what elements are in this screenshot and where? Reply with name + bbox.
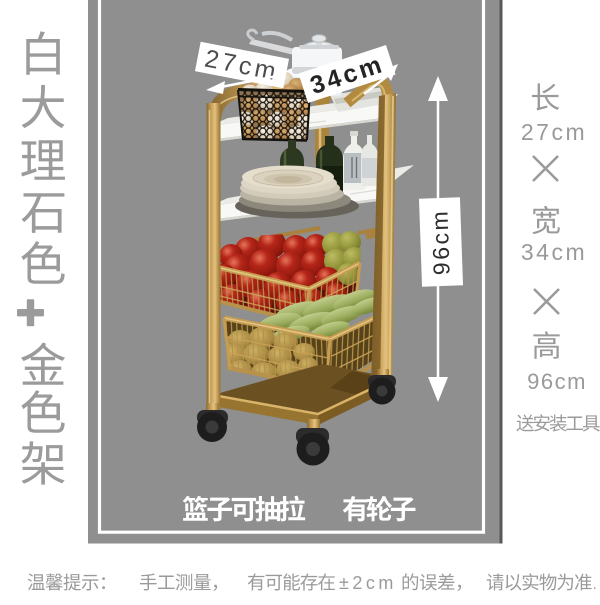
svg-text:±2cm: ±2cm (339, 573, 397, 593)
svg-text:96cm: 96cm (527, 369, 587, 394)
svg-text:27cm: 27cm (521, 119, 587, 145)
svg-text:.: . (593, 576, 597, 593)
svg-text:96cm: 96cm (426, 208, 454, 275)
svg-text:34cm: 34cm (521, 239, 587, 265)
